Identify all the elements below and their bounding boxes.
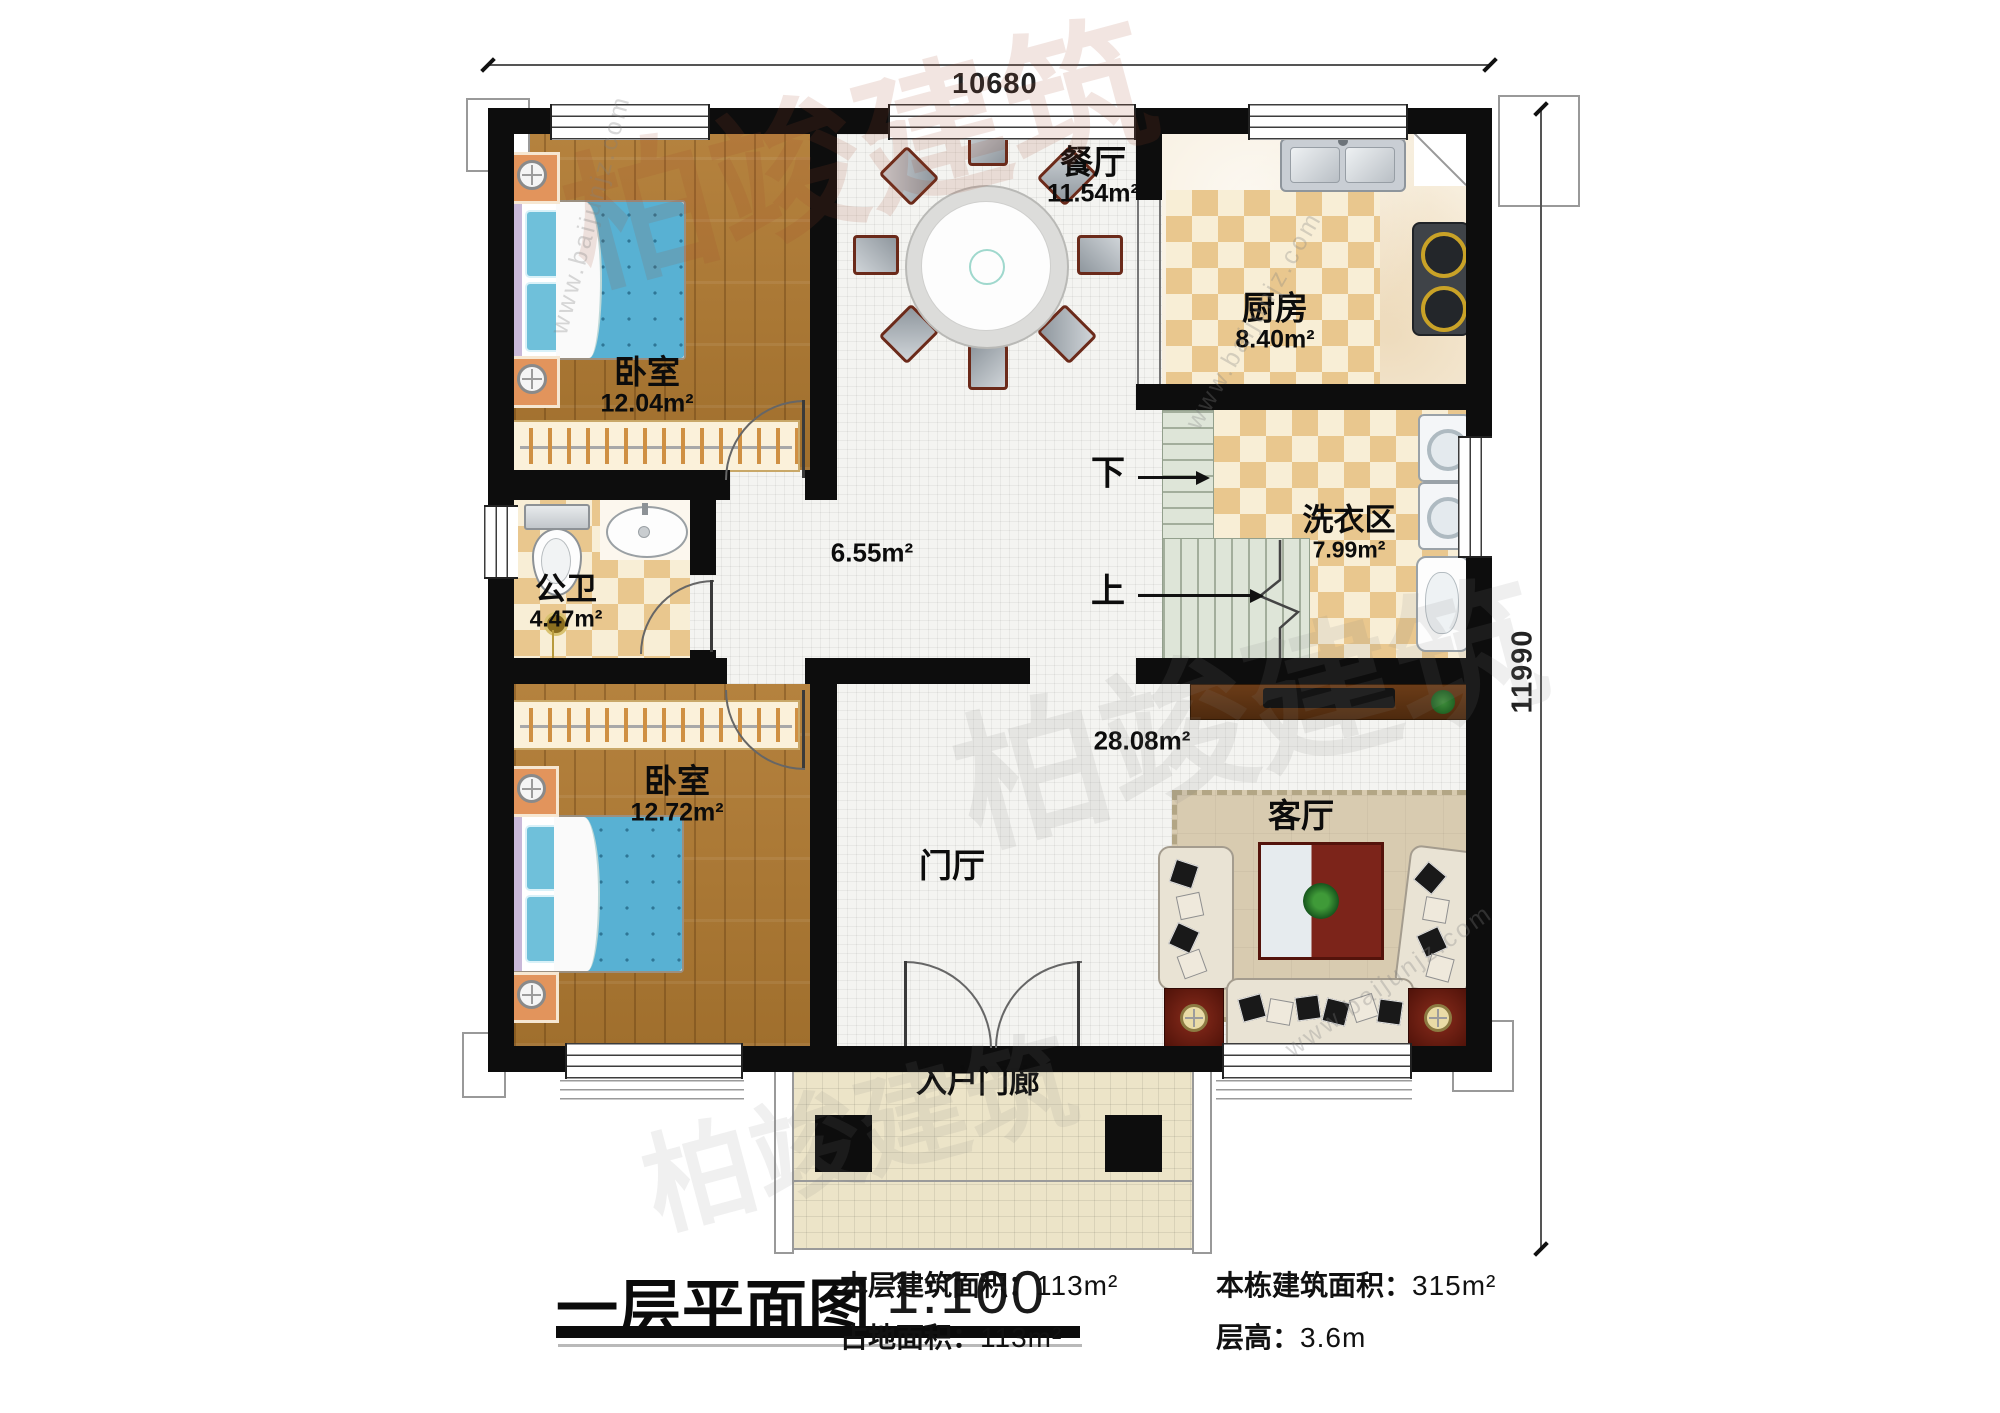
room-label-dining: 餐厅 11.54m² — [1047, 146, 1139, 207]
bathroom-sink — [606, 506, 688, 558]
porch-column — [815, 1115, 872, 1172]
porch-column — [1105, 1115, 1162, 1172]
bedroom-bottom-window — [565, 1043, 743, 1079]
entry-door-leaf-right — [1077, 961, 1080, 1046]
bedroom-bottom-window-sill — [560, 1080, 744, 1102]
bed-sheet-wave — [554, 817, 600, 971]
porch-rail-right — [1192, 1048, 1212, 1254]
kitchen-stove — [1412, 222, 1470, 336]
foyer-label: 门厅 — [919, 839, 985, 887]
room-label-bathroom: 公卫 4.47m² — [530, 574, 603, 631]
plant-icon — [1303, 883, 1339, 919]
bedroom-top-door-leaf — [802, 400, 805, 478]
wall-bedroom-top-bottom-a — [488, 470, 730, 500]
floor-plan-canvas: 下 上 卧室 12.04m² 餐厅 11.54m² 厨房 8.40m² 洗衣区 … — [0, 0, 2000, 1413]
bathroom-door-leaf — [710, 580, 713, 652]
coffee-table — [1258, 842, 1384, 960]
room-label-laundry: 洗衣区 7.99m² — [1303, 505, 1396, 562]
dining-chair — [968, 344, 1008, 390]
stat-label: 层高： — [1216, 1322, 1300, 1353]
burner-icon — [1421, 286, 1467, 332]
dim-height-label: 11990 — [1507, 617, 1540, 727]
bedroom-bottom-door-leaf — [802, 690, 805, 768]
bed-top — [510, 200, 686, 360]
porch-step-line — [790, 1248, 1192, 1250]
lazy-susan-ring — [969, 249, 1005, 285]
lamp-icon — [517, 160, 547, 190]
wall-bathroom-right-a — [690, 500, 716, 575]
stair-down-arrow — [1138, 476, 1196, 479]
stat-floor-area: 本层建筑面积：113m² — [840, 1264, 1118, 1304]
tv-icon — [1263, 688, 1395, 708]
stair-up-label: 上 — [1091, 564, 1125, 613]
burner-icon — [1421, 232, 1467, 278]
living-area-label: 28.08m² — [1094, 726, 1191, 757]
stair-up-arrow — [1138, 594, 1250, 597]
room-area: 12.04m² — [600, 390, 693, 416]
tv-cabinet — [1190, 684, 1492, 720]
dining-chair — [1077, 235, 1123, 275]
room-name: 卧室 — [614, 356, 680, 391]
stat-value: 113m² — [980, 1322, 1062, 1353]
nightstand — [508, 972, 559, 1023]
porch-step-line — [790, 1180, 1192, 1182]
sofa-pillow — [1294, 994, 1321, 1021]
nightstand — [508, 356, 560, 408]
bed-bottom — [510, 815, 684, 973]
stat-label: 本栋建筑面积： — [1216, 1270, 1412, 1301]
living-name-label: 客厅 — [1268, 789, 1334, 837]
floor-drain-stem — [552, 630, 554, 658]
kitchen-tile-area — [1166, 190, 1380, 384]
kitchen-door-frame — [1137, 200, 1139, 384]
sofa-pillow — [1422, 896, 1450, 924]
bed-sheet-wave — [556, 202, 602, 358]
kitchen-window — [1248, 104, 1408, 140]
side-table — [1164, 988, 1224, 1048]
bedroom-top-window — [550, 104, 710, 140]
room-area: 4.47m² — [530, 606, 603, 630]
kitchen-door-frame — [1159, 200, 1161, 384]
stat-label: 占地面积： — [840, 1322, 980, 1353]
entry-door-leaf-left — [904, 961, 907, 1046]
dining-chair — [853, 235, 899, 275]
stat-value: 3.6m — [1300, 1322, 1366, 1353]
lamp-icon — [517, 774, 546, 803]
stair-down-arrowhead-icon — [1196, 471, 1210, 485]
room-area: 7.99m² — [1313, 537, 1386, 561]
toilet — [524, 504, 590, 530]
lamp-icon — [517, 980, 546, 1009]
room-label-kitchen: 厨房 8.40m² — [1235, 292, 1314, 353]
wall-mid-b — [805, 658, 1030, 684]
lamp-icon — [1424, 1004, 1452, 1032]
stat-land-area: 占地面积：113m² — [840, 1316, 1062, 1356]
stat-value: 315m² — [1412, 1270, 1496, 1301]
stat-floor-height: 层高：3.6m — [1216, 1316, 1366, 1356]
wall-kitchen-left — [1136, 134, 1162, 200]
room-area: 11.54m² — [1047, 180, 1139, 206]
living-window-sill — [1216, 1080, 1412, 1106]
nightstand — [508, 766, 559, 817]
porch-label: 入户门廊 — [916, 1057, 1040, 1102]
sofa-pillow — [1266, 998, 1294, 1026]
stair-down-label: 下 — [1091, 446, 1125, 495]
wall-kitchen-bottom — [1136, 384, 1466, 410]
room-name: 卧室 — [644, 765, 710, 800]
room-area: 12.72m² — [630, 799, 723, 825]
room-name: 厨房 — [1242, 292, 1308, 327]
wall-tv — [1136, 658, 1466, 684]
lamp-icon — [517, 364, 547, 394]
wall-right — [1466, 108, 1492, 1072]
porch-rail-left — [774, 1048, 794, 1254]
plant-icon — [1431, 690, 1455, 714]
laundry-window — [1458, 436, 1492, 558]
room-name: 洗衣区 — [1303, 505, 1396, 538]
laundry-basin — [1416, 556, 1470, 652]
nightstand — [508, 152, 560, 204]
dim-line-top — [488, 64, 1492, 66]
room-name: 餐厅 — [1060, 146, 1126, 181]
sofa-pillow — [1176, 892, 1204, 920]
bathroom-window — [484, 505, 518, 579]
dim-width-label: 10680 — [952, 68, 1038, 101]
dining-window — [888, 104, 1136, 140]
wall-mid-a — [488, 658, 727, 684]
wall-bedroom-bottom-right — [810, 684, 837, 1046]
wall-bedroom-top-bottom-b — [805, 470, 837, 500]
room-label-bedroom-top: 卧室 12.04m² — [600, 356, 693, 417]
hall-area-label: 6.55m² — [831, 538, 913, 569]
stat-label: 本层建筑面积： — [840, 1270, 1036, 1301]
room-area: 8.40m² — [1235, 326, 1314, 352]
lamp-icon — [1180, 1004, 1208, 1032]
dining-table — [905, 185, 1069, 349]
kitchen-sink — [1280, 138, 1406, 192]
stat-total-area: 本栋建筑面积：315m² — [1216, 1264, 1496, 1304]
side-table — [1408, 988, 1468, 1048]
living-window — [1222, 1043, 1412, 1079]
room-label-bedroom-bottom: 卧室 12.72m² — [630, 765, 723, 826]
wall-bedroom-top-right — [810, 134, 837, 470]
faucet-icon — [642, 503, 648, 515]
dim-line-right — [1540, 108, 1542, 1248]
stair-up-arrowhead-icon — [1250, 589, 1264, 603]
sofa-pillow — [1376, 998, 1403, 1025]
stat-value: 113m² — [1036, 1270, 1118, 1301]
room-name: 公卫 — [535, 574, 597, 607]
wall-left — [488, 108, 514, 1072]
